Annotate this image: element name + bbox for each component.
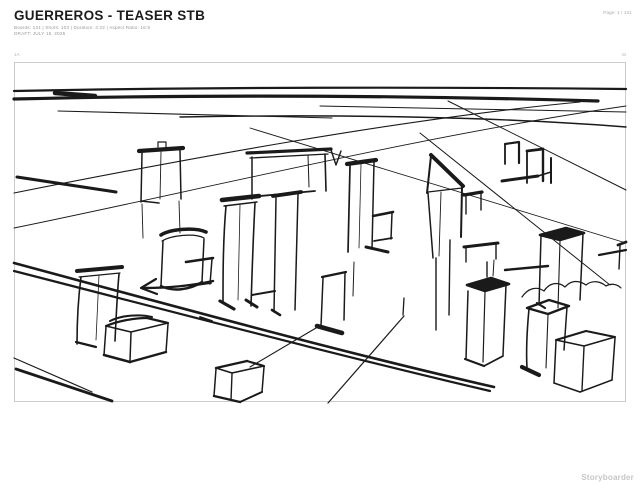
storyboard-page: GUERREROS - TEASER STB Boards: 131 | Sho… [0, 0, 640, 494]
storyboarder-watermark: Storyboarder [581, 473, 634, 482]
storyboard-sketch [0, 0, 640, 494]
